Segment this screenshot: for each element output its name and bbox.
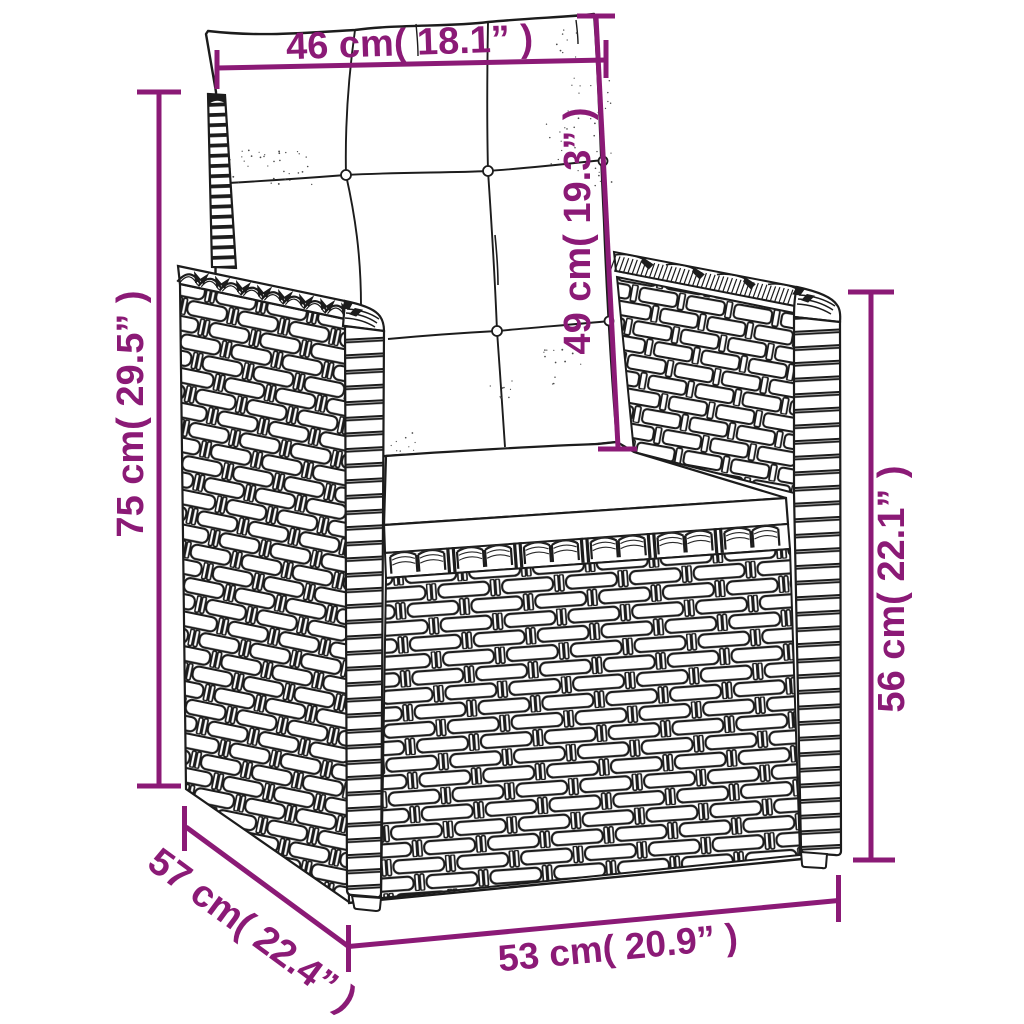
- svg-text:46 cm( 18.1” ): 46 cm( 18.1” ): [285, 18, 533, 69]
- svg-text:75 cm( 29.5” ): 75 cm( 29.5” ): [110, 290, 152, 537]
- svg-text:49 cm( 19.3” ): 49 cm( 19.3” ): [557, 107, 599, 354]
- svg-text:56 cm( 22.1” ): 56 cm( 22.1” ): [871, 465, 913, 712]
